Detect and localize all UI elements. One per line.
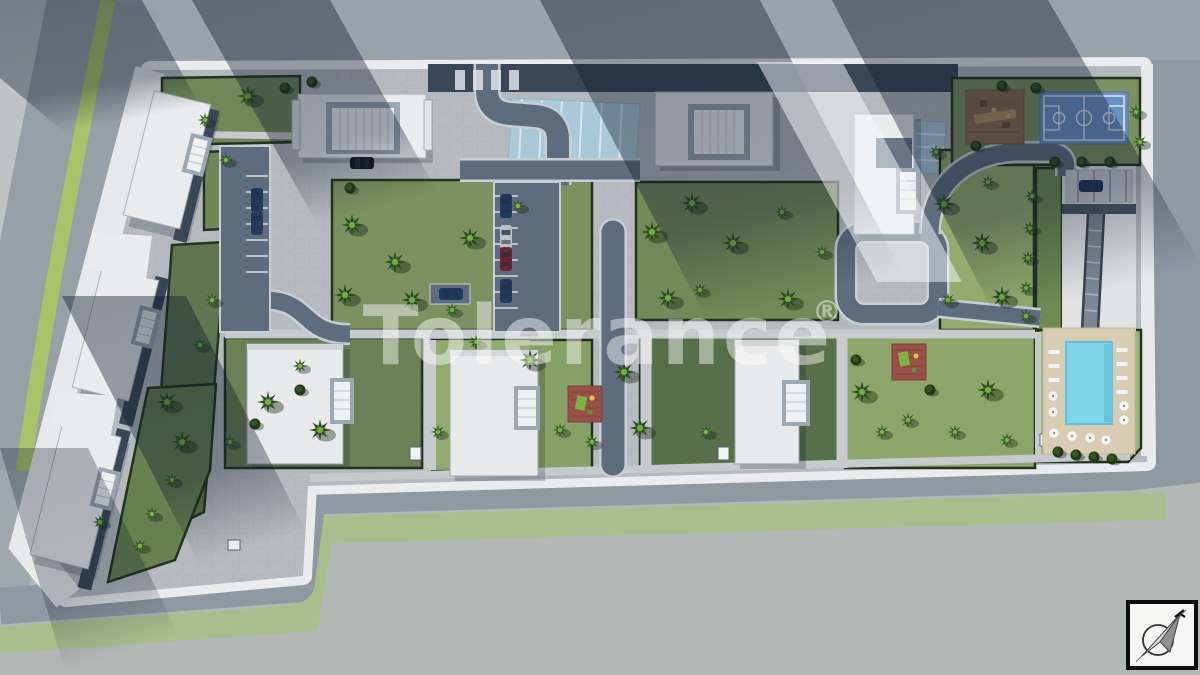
site-plan-render: Tolerance ® — [0, 0, 1200, 675]
car — [500, 247, 512, 271]
car — [500, 194, 512, 218]
playground-small-2 — [892, 344, 926, 380]
watermark-text: Tolerance — [363, 289, 833, 384]
parking-west — [220, 146, 270, 332]
west-street-end — [0, 470, 4, 600]
car — [251, 211, 263, 235]
car — [251, 188, 263, 212]
pool-deep-edge — [1104, 344, 1112, 422]
swimming-pool-area — [1043, 328, 1135, 454]
watermark: Tolerance ® — [363, 289, 845, 384]
registered-mark: ® — [812, 295, 845, 330]
compass-north-arrow-icon — [1128, 602, 1196, 668]
car — [500, 225, 512, 249]
playground-small-1 — [568, 386, 602, 422]
site-plan-svg: Tolerance ® — [0, 0, 1200, 675]
